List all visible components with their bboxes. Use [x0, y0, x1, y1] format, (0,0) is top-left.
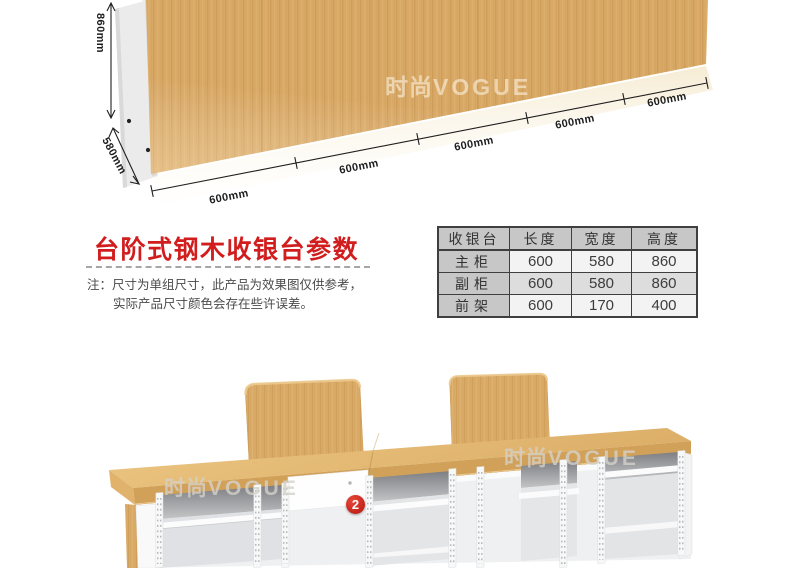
spec-row-main-cabinet: 主柜 600 580 860	[438, 250, 697, 273]
spec-cell: 580	[572, 250, 632, 273]
product-detail-image: 860mm 580mm 600mm 600mm 600mm 600mm 600m…	[0, 0, 790, 568]
spec-cell: 400	[632, 295, 698, 318]
step-2-badge: 2	[346, 495, 365, 514]
note-text1: 尺寸为单组尺寸，此产品为效果图仅供参考，	[112, 278, 362, 292]
spec-cell: 860	[632, 273, 698, 295]
spec-row-side-cabinet: 副柜 600 580 860	[438, 273, 697, 295]
spec-table-header-row: 收银台 长度 宽度 高度	[438, 227, 697, 250]
spec-header-width: 宽度	[572, 227, 632, 250]
size-note: 注：尺寸为单组尺寸，此产品为效果图仅供参考， 实际产品尺寸颜色会存在些许误差。	[87, 276, 362, 314]
note-prefix: 注：	[87, 278, 112, 292]
spec-cell: 600	[510, 273, 572, 295]
counter-perspective-illustration	[0, 358, 790, 568]
counter-front-illustration	[0, 0, 790, 215]
params-title: 台阶式钢木收银台参数	[94, 230, 359, 266]
spec-cell: 主柜	[438, 250, 510, 273]
drawer-keyhole	[348, 481, 351, 484]
spec-cell: 170	[572, 295, 632, 318]
size-note-line2: 实际产品尺寸颜色会存在些许误差。	[87, 295, 362, 314]
spec-header-height: 高度	[632, 227, 698, 250]
divider-panel-right	[450, 374, 550, 447]
spec-cell: 副柜	[438, 273, 510, 295]
spec-cell: 前架	[438, 295, 510, 318]
dim-height-label: 860mm	[94, 9, 106, 57]
divider-panel-left	[245, 380, 363, 461]
spec-row-front-rack: 前架 600 170 400	[438, 295, 697, 318]
spec-cell: 860	[632, 250, 698, 273]
dashed-divider	[86, 266, 370, 268]
spec-cell: 600	[510, 250, 572, 273]
spec-header-length: 长度	[510, 227, 572, 250]
spec-cell: 580	[572, 273, 632, 295]
spec-cell: 600	[510, 295, 572, 318]
size-note-line1: 注：尺寸为单组尺寸，此产品为效果图仅供参考，	[87, 276, 362, 295]
spec-table: 收银台 长度 宽度 高度 主柜 600 580 860 副柜 600 580 8…	[437, 226, 698, 318]
spec-header-name: 收银台	[438, 227, 510, 250]
